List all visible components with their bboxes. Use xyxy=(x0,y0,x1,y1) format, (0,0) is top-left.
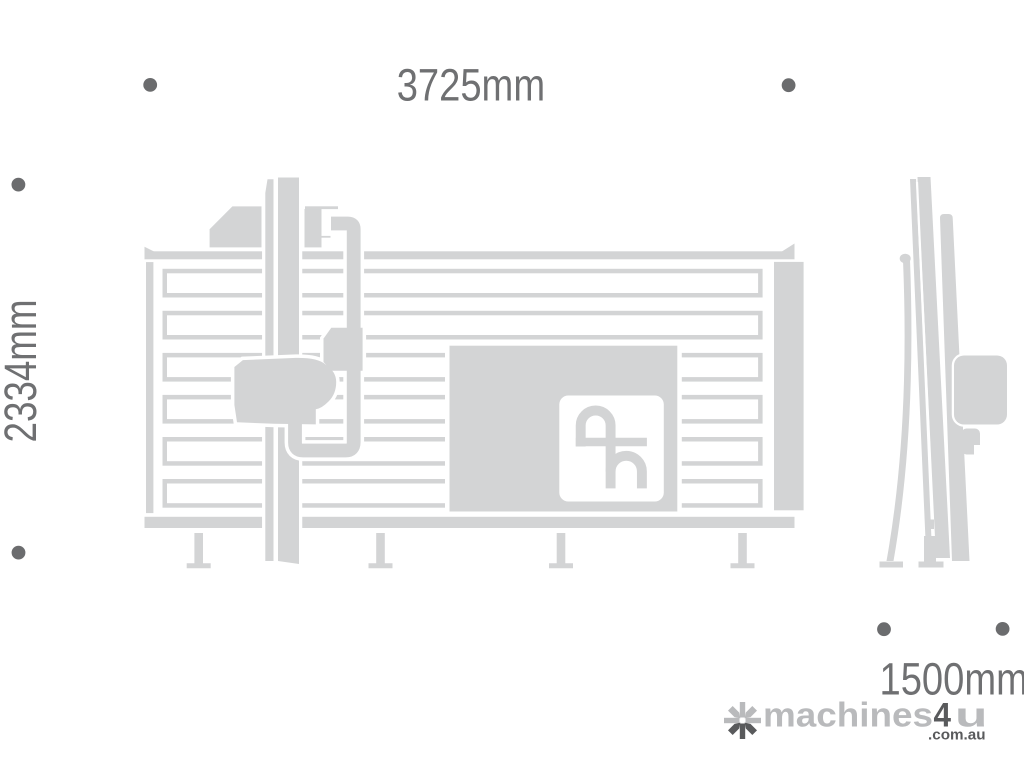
svg-text:3725mm: 3725mm xyxy=(397,60,545,111)
svg-text:machines: machines xyxy=(763,697,933,735)
svg-text:.com.au: .com.au xyxy=(928,727,986,744)
svg-text:2334mm: 2334mm xyxy=(0,300,46,443)
